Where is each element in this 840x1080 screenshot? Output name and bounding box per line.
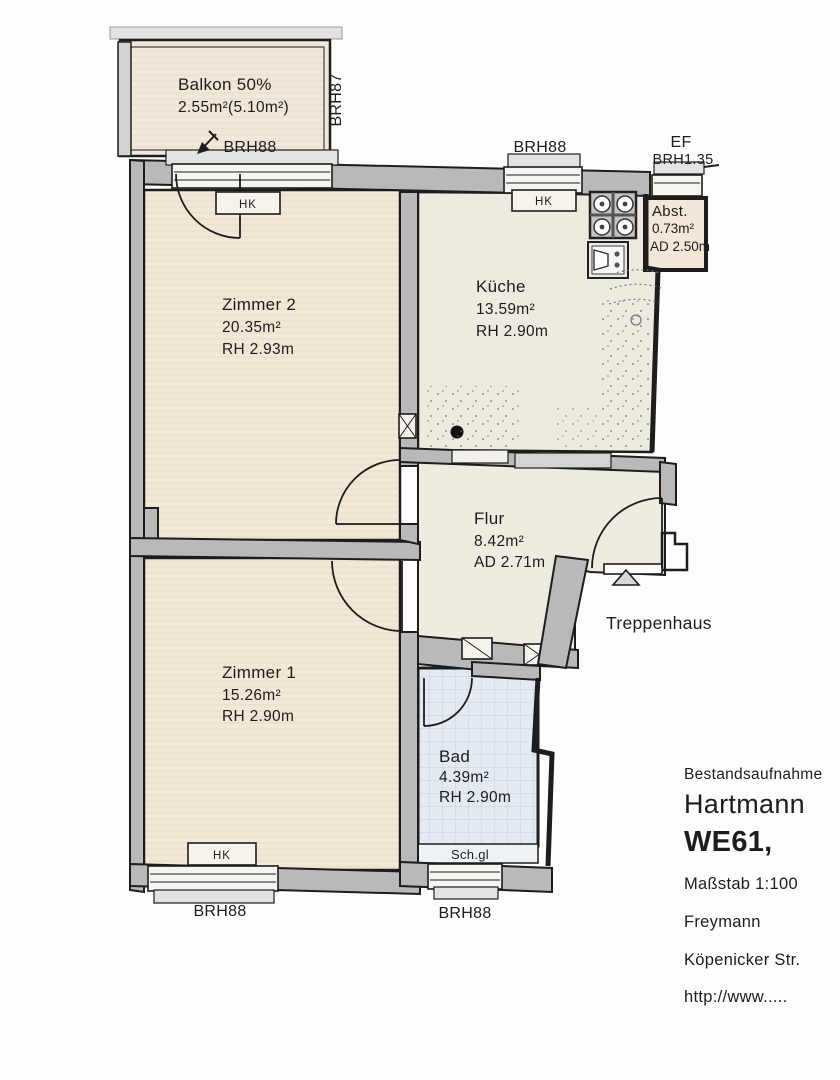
label-brh88-zimmer1: BRH88 bbox=[193, 903, 246, 920]
zimmer1-window-sill bbox=[154, 890, 274, 903]
kueche-stipple-left bbox=[424, 386, 520, 448]
zimmer2-texture bbox=[144, 190, 400, 540]
bad-window-sill bbox=[434, 887, 498, 899]
stove-icon bbox=[590, 192, 636, 238]
room-area-zimmer2: 20.35m² bbox=[222, 319, 281, 336]
label-brh88-kueche: BRH88 bbox=[513, 139, 566, 156]
room-label-abst: Abst. bbox=[652, 203, 688, 220]
room-height-bad: RH 2.90m bbox=[439, 789, 511, 806]
label-hk-zimmer1: HK bbox=[213, 850, 231, 862]
title-unit: WE61, bbox=[684, 826, 773, 858]
wall-bad-top bbox=[472, 662, 540, 680]
room-area-abst: 0.73m² bbox=[652, 221, 695, 236]
title-block: Bestandsaufnahme Hartmann WE61, Maßstab … bbox=[684, 766, 822, 1006]
kueche-window bbox=[504, 167, 582, 193]
room-label-kueche: Küche bbox=[476, 277, 526, 296]
label-brh88-bad: BRH88 bbox=[438, 905, 491, 922]
wall-left bbox=[130, 160, 144, 892]
label-hk-zimmer2: HK bbox=[239, 199, 257, 211]
sink-icon bbox=[588, 242, 628, 278]
zimmer1-window bbox=[148, 866, 278, 891]
bad-floor bbox=[418, 668, 538, 846]
entry-threshold bbox=[604, 564, 662, 574]
room-height-zimmer2: RH 2.93m bbox=[222, 341, 294, 358]
room-height-kueche: RH 2.90m bbox=[476, 323, 548, 340]
room-area-balkon: 2.55m²(5.10m²) bbox=[178, 99, 289, 116]
room-height-abst: AD 2.50m bbox=[650, 239, 710, 254]
wall-z2-flur-stub bbox=[400, 524, 418, 544]
room-height-flur: AD 2.71m bbox=[474, 554, 545, 571]
title-survey-type: Bestandsaufnahme bbox=[684, 766, 822, 783]
room-label-flur: Flur bbox=[474, 509, 505, 528]
room-area-kueche: 13.59m² bbox=[476, 301, 535, 318]
room-label-zimmer1: Zimmer 1 bbox=[222, 663, 296, 682]
label-brh135: BRH1.35 bbox=[653, 152, 714, 168]
title-url: http://www..... bbox=[684, 988, 788, 1006]
kueche-flur-light-band bbox=[515, 453, 611, 468]
room-area-flur: 8.42m² bbox=[474, 533, 524, 550]
title-scale: Maßstab 1:100 bbox=[684, 875, 798, 893]
floor-plan-page: Balkon 50% 2.55m²(5.10m²) BRH87 BRH88 Zi… bbox=[0, 0, 840, 1080]
kueche-stipple-right bbox=[598, 300, 652, 448]
bad-window bbox=[428, 864, 502, 889]
room-area-zimmer1: 15.26m² bbox=[222, 687, 281, 704]
label-ef: EF bbox=[670, 134, 691, 151]
room-label-zimmer2: Zimmer 2 bbox=[222, 295, 296, 314]
label-brh87: BRH87 bbox=[328, 73, 345, 126]
wall-z1-bad bbox=[400, 632, 418, 888]
floor-plan-canvas: Balkon 50% 2.55m²(5.10m²) BRH87 BRH88 Zi… bbox=[0, 0, 840, 1080]
kueche-window-sill bbox=[508, 154, 580, 168]
room-label-balkon: Balkon 50% bbox=[178, 75, 272, 94]
label-treppenhaus: Treppenhaus bbox=[606, 613, 712, 633]
label-schgl: Sch.gl bbox=[451, 847, 489, 862]
zimmer2-window bbox=[172, 164, 332, 188]
title-street: Köpenicker Str. bbox=[684, 951, 800, 969]
kueche-stipple-mid bbox=[556, 408, 598, 448]
kueche-flur-opening bbox=[452, 450, 508, 463]
title-client: Hartmann bbox=[684, 789, 805, 819]
label-brh88-balkon: BRH88 bbox=[223, 139, 276, 156]
room-area-bad: 4.39m² bbox=[439, 769, 489, 786]
room-label-bad: Bad bbox=[439, 747, 470, 766]
abst-window bbox=[652, 175, 702, 196]
label-hk-kueche: HK bbox=[535, 196, 553, 208]
facade-band bbox=[110, 27, 342, 39]
balcony-left-wall bbox=[118, 42, 131, 156]
room-height-zimmer1: RH 2.90m bbox=[222, 708, 294, 725]
wall-middle bbox=[130, 538, 420, 560]
title-surveyor: Freymann bbox=[684, 913, 761, 931]
